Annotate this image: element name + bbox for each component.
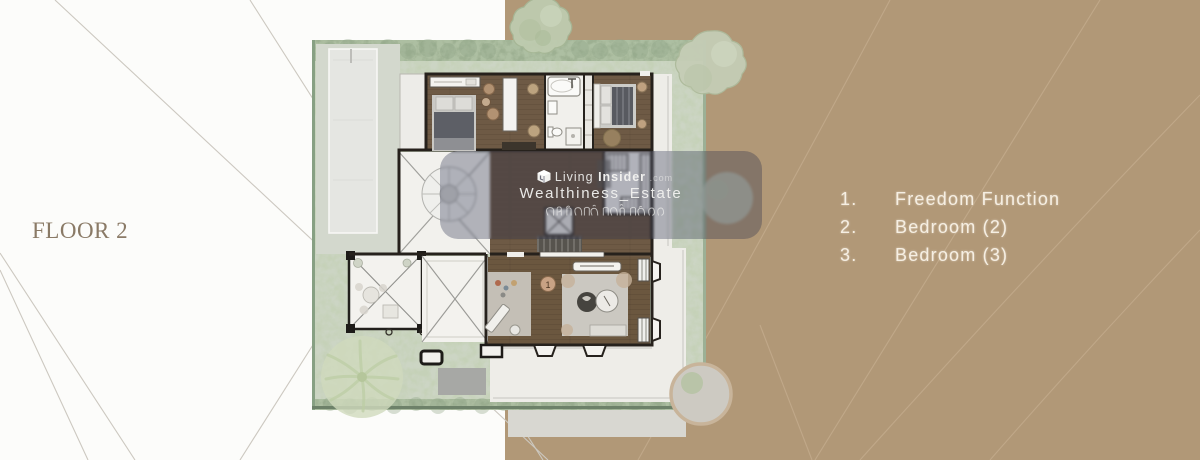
svg-text:1: 1 [545, 280, 550, 290]
